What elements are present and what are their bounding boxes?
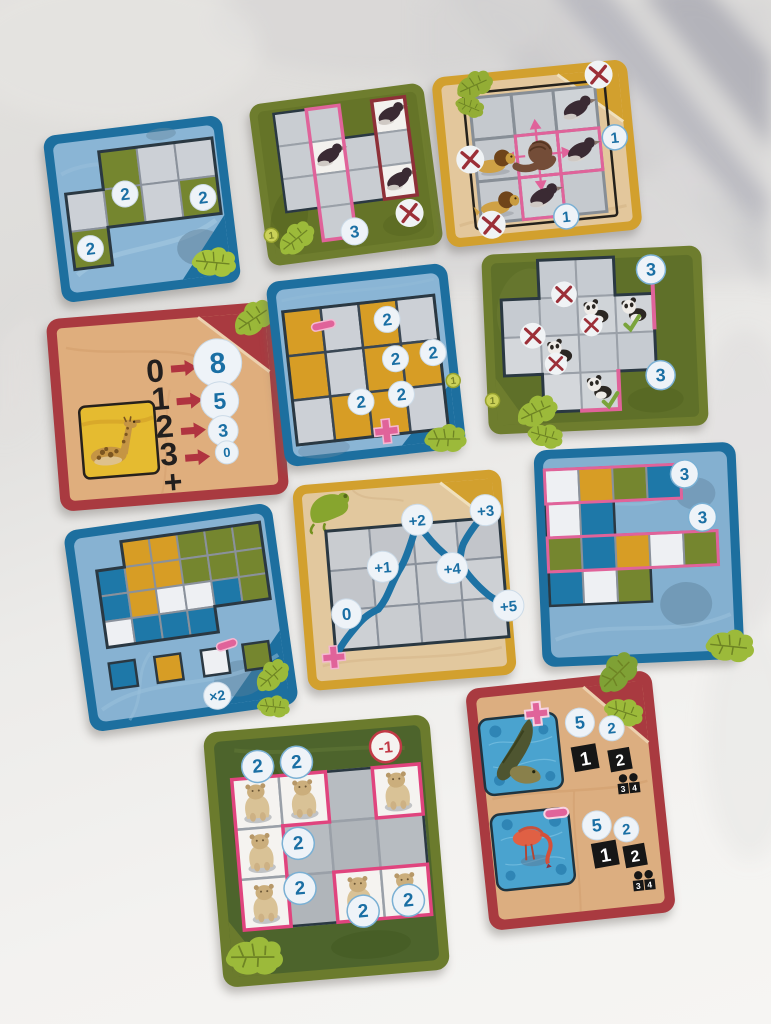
svg-text:2: 2	[355, 392, 366, 412]
svg-text:+: +	[162, 463, 184, 500]
svg-text:0: 0	[341, 605, 352, 625]
svg-text:-1: -1	[378, 739, 394, 757]
svg-text:5: 5	[574, 712, 586, 733]
svg-text:2: 2	[357, 901, 369, 923]
svg-text:2: 2	[427, 343, 438, 363]
svg-text:+4: +4	[443, 560, 462, 578]
svg-text:2: 2	[290, 752, 302, 774]
svg-text:+1: +1	[374, 559, 392, 577]
svg-text:2: 2	[607, 720, 617, 738]
svg-text:2: 2	[402, 890, 414, 912]
svg-text:+3: +3	[476, 502, 494, 520]
svg-text:2: 2	[621, 821, 631, 839]
svg-text:2: 2	[390, 349, 401, 369]
svg-text:1: 1	[490, 396, 496, 407]
svg-text:0: 0	[223, 445, 231, 461]
svg-text:8: 8	[208, 347, 227, 380]
svg-text:1: 1	[610, 129, 620, 147]
svg-text:5: 5	[212, 387, 227, 414]
svg-text:5: 5	[591, 815, 603, 836]
svg-text:3: 3	[646, 259, 657, 279]
svg-text:+2: +2	[408, 512, 426, 530]
svg-text:1: 1	[561, 209, 571, 227]
svg-text:2: 2	[252, 756, 264, 778]
svg-text:×2: ×2	[208, 687, 226, 705]
svg-text:3: 3	[655, 365, 666, 385]
svg-text:2: 2	[294, 878, 306, 900]
svg-text:+5: +5	[499, 598, 517, 616]
svg-text:3: 3	[217, 420, 229, 441]
svg-text:2: 2	[396, 385, 407, 405]
svg-text:3: 3	[697, 508, 707, 527]
svg-text:2: 2	[292, 833, 304, 855]
svg-text:2: 2	[381, 310, 392, 330]
svg-text:3: 3	[679, 465, 689, 484]
